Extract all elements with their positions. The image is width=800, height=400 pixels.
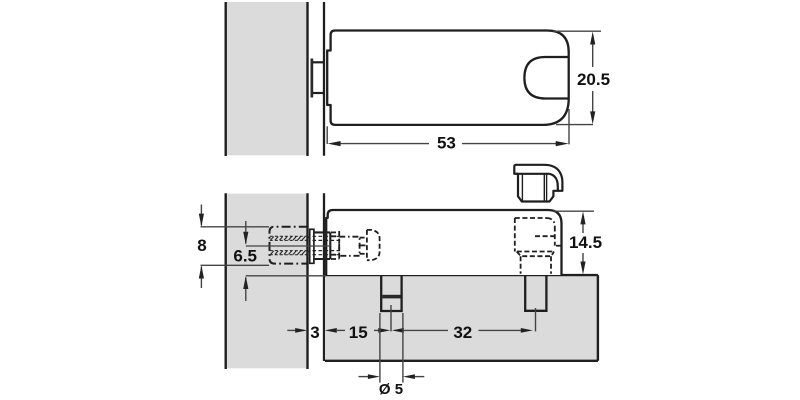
svg-text:32: 32 bbox=[453, 323, 472, 342]
svg-text:6.5: 6.5 bbox=[233, 247, 257, 266]
svg-text:8: 8 bbox=[197, 236, 206, 255]
svg-text:20.5: 20.5 bbox=[577, 70, 610, 89]
svg-text:15: 15 bbox=[349, 323, 368, 342]
svg-text:Ø 5: Ø 5 bbox=[379, 381, 403, 398]
svg-text:53: 53 bbox=[437, 134, 456, 153]
svg-text:3: 3 bbox=[310, 323, 319, 342]
svg-text:14.5: 14.5 bbox=[569, 233, 602, 252]
